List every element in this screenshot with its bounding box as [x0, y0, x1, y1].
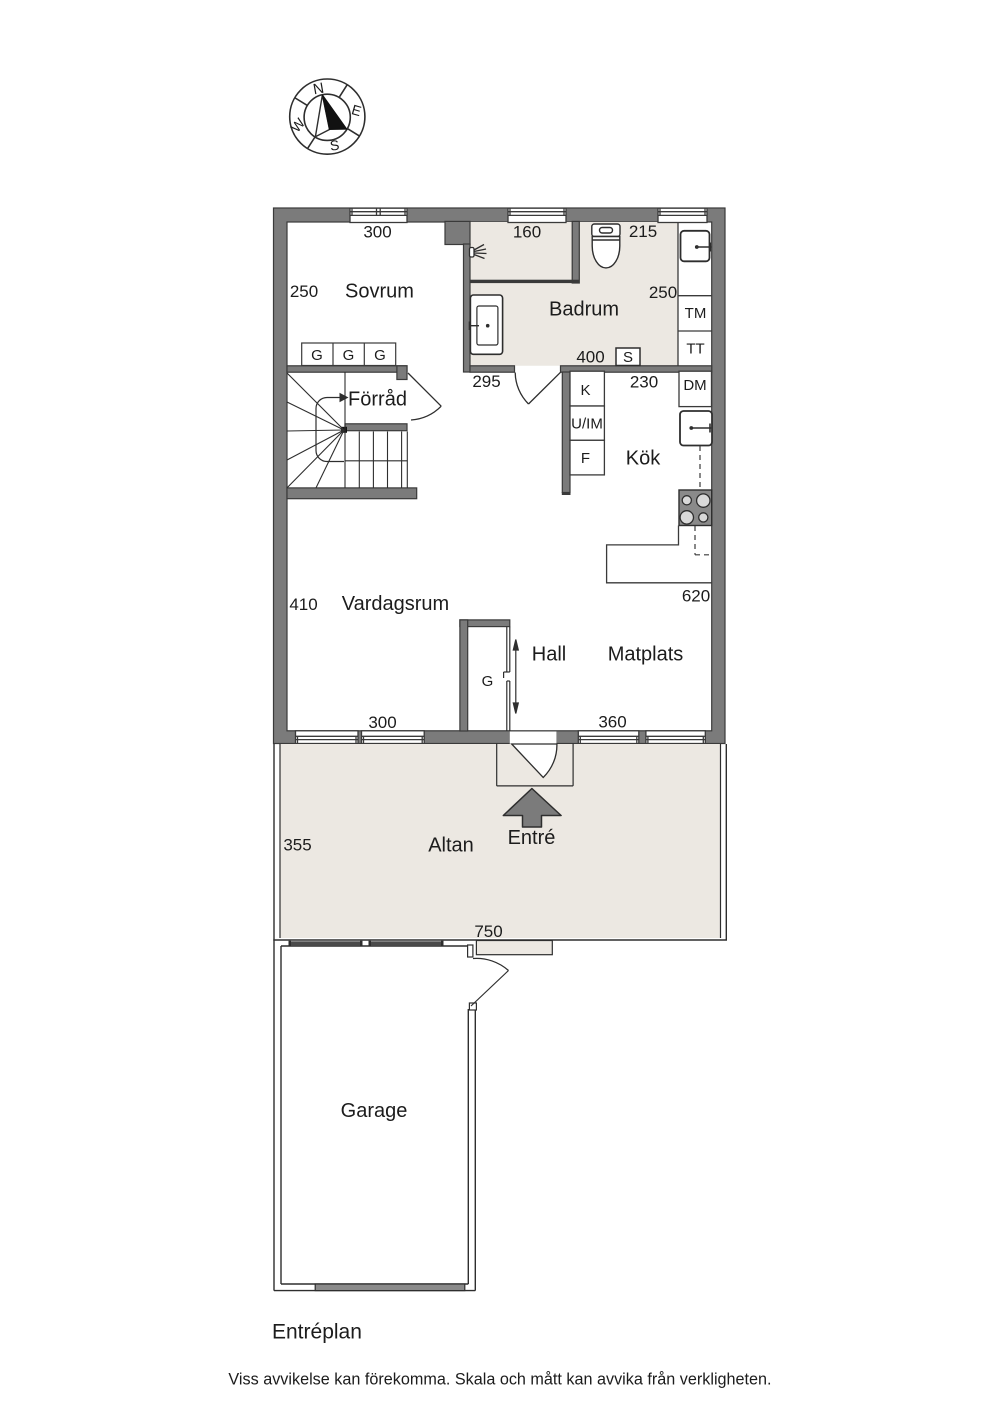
- svg-text:Altan: Altan: [428, 835, 474, 857]
- svg-text:TT: TT: [686, 341, 704, 358]
- svg-text:Entré: Entré: [508, 827, 556, 849]
- svg-text:G: G: [343, 347, 355, 364]
- svg-text:Hall: Hall: [532, 644, 566, 666]
- svg-text:DM: DM: [683, 377, 706, 394]
- svg-text:TM: TM: [685, 305, 707, 322]
- svg-text:G: G: [482, 673, 494, 690]
- svg-text:Kök: Kök: [626, 448, 661, 470]
- svg-text:230: 230: [630, 373, 658, 392]
- svg-text:Viss avvikelse kan förekomma.: Viss avvikelse kan förekomma. Skala och …: [228, 1371, 771, 1389]
- svg-text:300: 300: [363, 223, 391, 242]
- svg-text:400: 400: [576, 348, 604, 367]
- svg-text:300: 300: [368, 713, 396, 732]
- svg-text:Badrum: Badrum: [549, 299, 619, 321]
- svg-text:Garage: Garage: [341, 1100, 408, 1122]
- svg-text:355: 355: [283, 836, 311, 855]
- svg-text:U/IM: U/IM: [571, 416, 603, 433]
- svg-text:750: 750: [474, 922, 502, 941]
- svg-text:Vardagsrum: Vardagsrum: [342, 593, 449, 615]
- svg-text:G: G: [311, 347, 323, 364]
- svg-text:360: 360: [598, 713, 626, 732]
- svg-text:410: 410: [289, 595, 317, 614]
- svg-text:160: 160: [513, 223, 541, 242]
- svg-text:G: G: [374, 347, 386, 364]
- svg-text:Entréplan: Entréplan: [272, 1321, 362, 1344]
- svg-text:250: 250: [290, 282, 318, 301]
- svg-text:Sovrum: Sovrum: [345, 281, 414, 303]
- svg-text:Förråd: Förråd: [348, 389, 407, 411]
- svg-text:Matplats: Matplats: [608, 644, 684, 666]
- svg-text:215: 215: [629, 222, 657, 241]
- svg-text:S: S: [623, 349, 633, 366]
- svg-text:620: 620: [682, 587, 710, 606]
- svg-text:250: 250: [649, 283, 677, 302]
- svg-text:295: 295: [472, 372, 500, 391]
- svg-text:K: K: [580, 382, 590, 399]
- svg-text:F: F: [581, 450, 590, 467]
